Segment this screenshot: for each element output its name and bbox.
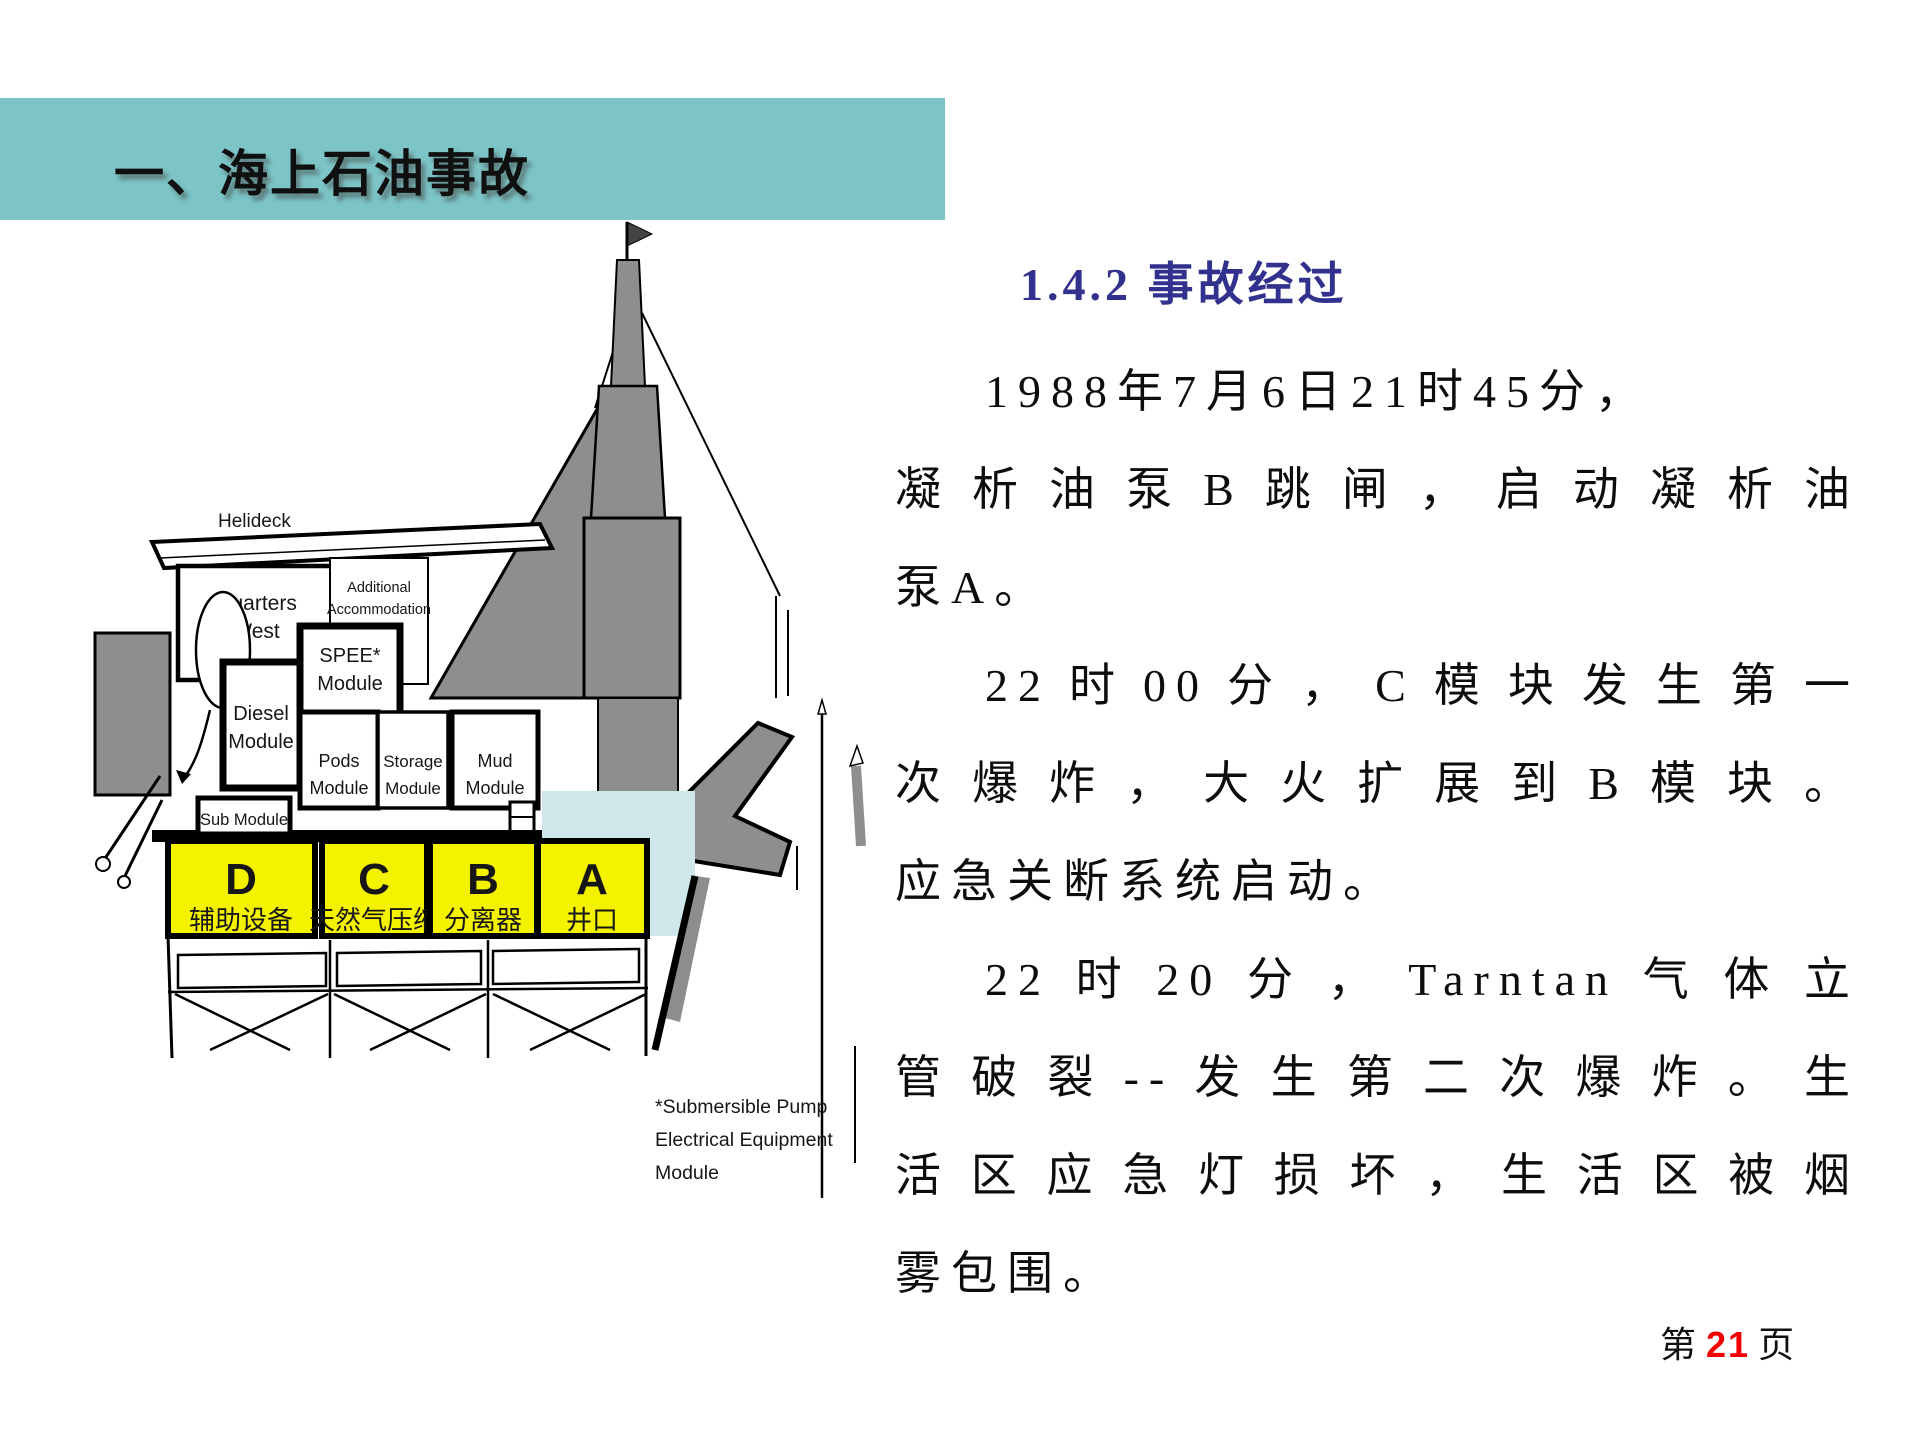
page-footer-prefix: 第 <box>1660 1325 1698 1365</box>
truss-diag-3a <box>493 994 610 1050</box>
derrick-tower <box>584 518 680 698</box>
paragraph-line-4: 22时00分，C模块发生第一 <box>895 637 1860 735</box>
page-number: 21 <box>1698 1324 1758 1365</box>
spee-module-label-1: SPEE* <box>319 645 380 667</box>
section-heading: 1.4.2 事故经过 <box>895 245 1860 325</box>
left-gray-slab <box>95 633 170 795</box>
header-band: 一、海上石油事故 <box>0 98 945 220</box>
module-B-label: 分离器 <box>444 905 522 935</box>
text-column: 1.4.2 事故经过 1988年7月6日21时45分， 凝析油泵B跳闸，启动凝析… <box>895 245 1860 1323</box>
diesel-module-box <box>223 662 300 788</box>
flare-ball-1 <box>96 857 110 871</box>
module-A-label: 井口 <box>566 905 618 935</box>
truss-slab-1 <box>178 953 326 988</box>
module-A-letter: A <box>576 855 608 904</box>
page-footer: 第21页 <box>1660 1316 1796 1368</box>
truss-left-edge <box>168 936 172 1058</box>
paragraph-line-3: 泵A。 <box>895 539 1860 637</box>
storage-module-label-1: Storage <box>383 752 443 771</box>
page-footer-suffix: 页 <box>1758 1325 1796 1365</box>
truss-hline <box>168 988 648 992</box>
mud-module-label-2: Module <box>465 778 524 798</box>
truss-diag-3b <box>530 994 646 1050</box>
derrick-base <box>598 698 678 793</box>
derrick-mast <box>611 260 645 386</box>
left-structures <box>95 633 170 888</box>
tank-arrow <box>184 710 210 778</box>
module-C-letter: C <box>358 855 390 904</box>
slide: 一、海上石油事故 <box>0 0 1920 1440</box>
paragraph-line-2: 凝析油泵B跳闸，启动凝析油 <box>895 441 1860 539</box>
module-D-letter: D <box>225 855 257 904</box>
spee-module-label-2: Module <box>317 673 383 695</box>
truss-diag-1b <box>210 994 328 1050</box>
storage-module-label-2: Module <box>385 779 441 798</box>
truss-diag-2a <box>334 994 450 1050</box>
derrick-pennant <box>627 222 652 246</box>
paragraph-line-6: 应急关断系统启动。 <box>895 833 1860 931</box>
additional-accommodation-label-1: Additional <box>347 580 411 596</box>
footnote-line-2: Electrical Equipment <box>655 1129 833 1151</box>
slide-title: 一、海上石油事故 <box>114 134 530 206</box>
platform-diagram: Helideck Quarters West Additional Accomm… <box>90 218 940 1203</box>
module-C: C 天然气压缩 <box>309 841 439 936</box>
pods-module-label-1: Pods <box>318 751 359 771</box>
diesel-module-label-2: Module <box>228 731 294 753</box>
module-D: D 辅助设备 <box>168 841 315 936</box>
flare-tip-head <box>850 746 863 766</box>
jacket-truss <box>168 936 648 1058</box>
paragraph-line-10: 雾包围。 <box>895 1225 1860 1323</box>
flare-tip-line <box>856 766 861 846</box>
cable-tip <box>818 700 826 714</box>
additional-accommodation-label-2: Accommodation <box>327 602 431 618</box>
module-B-letter: B <box>467 855 499 904</box>
mud-module-label-1: Mud <box>477 751 512 771</box>
helideck-label: Helideck <box>218 511 291 532</box>
paragraph-line-1: 1988年7月6日21时45分， <box>895 343 1860 441</box>
derrick-mid <box>591 386 665 518</box>
spee-module-box <box>300 626 400 714</box>
paragraph-line-8: 管破裂--发生第二次爆炸。生 <box>895 1029 1860 1127</box>
production-modules: D 辅助设备 C 天然气压缩 B 分离器 A 井口 <box>168 841 647 936</box>
module-D-label: 辅助设备 <box>189 905 293 935</box>
footnote-line-1: *Submersible Pump <box>655 1096 827 1118</box>
paragraph-line-7: 22时20分，Tarntan气体立 <box>895 931 1860 1029</box>
truss-slab-3 <box>493 949 639 984</box>
truss-diag-2b <box>370 994 486 1050</box>
truss-slab-2 <box>337 951 481 986</box>
module-C-label: 天然气压缩 <box>309 905 439 935</box>
truss-diag-1a <box>175 994 290 1050</box>
module-A: A 井口 <box>538 841 647 936</box>
paragraph-line-9: 活区应急灯损坏，生活区被烟 <box>895 1127 1860 1225</box>
module-B: B 分离器 <box>430 841 537 936</box>
paragraph-line-5: 次爆炸，大火扩展到B模块。 <box>895 735 1860 833</box>
diesel-module-label-1: Diesel <box>233 703 289 725</box>
pods-module-label-2: Module <box>309 778 368 798</box>
flare-ball-2 <box>118 876 130 888</box>
diagram-footnote: *Submersible Pump Electrical Equipment M… <box>655 1096 833 1184</box>
sub-module-label: Sub Module <box>200 811 288 829</box>
footnote-line-3: Module <box>655 1162 719 1184</box>
